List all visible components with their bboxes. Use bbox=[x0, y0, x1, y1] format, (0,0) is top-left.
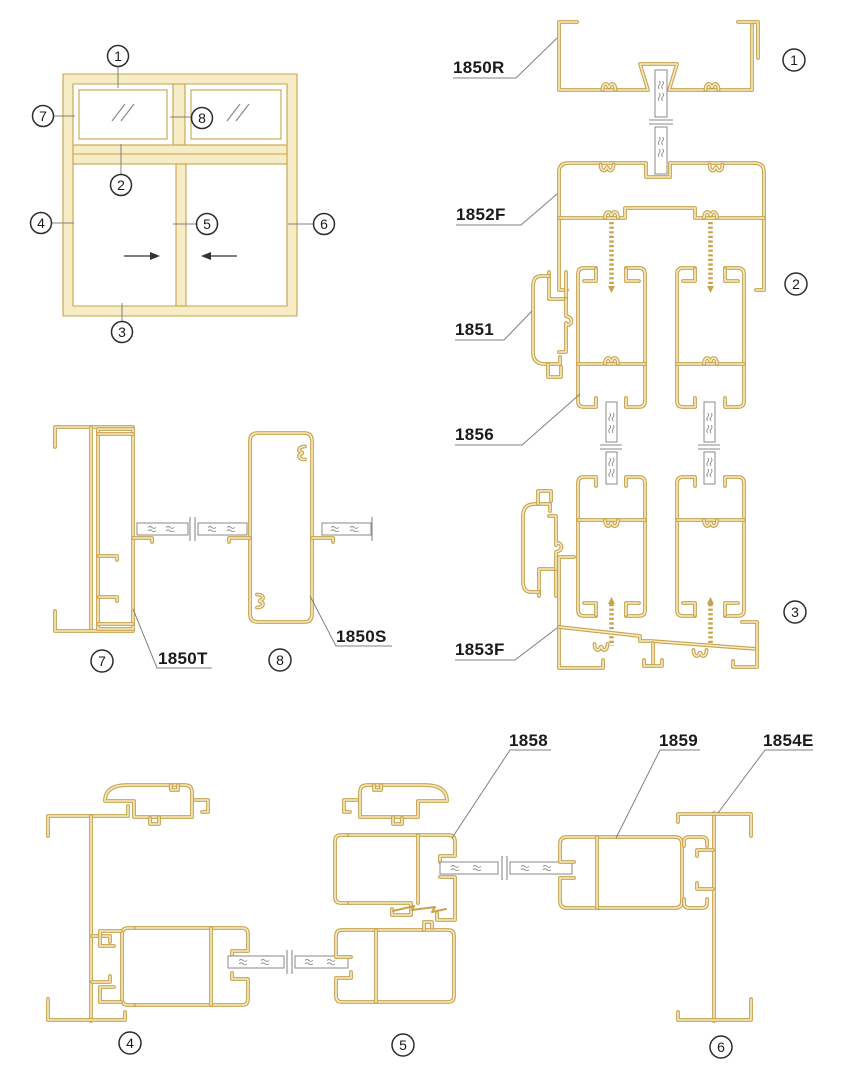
elevation-marker-3: 3 bbox=[112, 322, 133, 343]
svg-text:5: 5 bbox=[203, 216, 211, 232]
svg-text:8: 8 bbox=[276, 652, 284, 668]
svg-text:5: 5 bbox=[399, 1037, 407, 1053]
section-4-jamb-assembly bbox=[48, 785, 248, 1021]
section-6-jamb-1854E bbox=[678, 813, 751, 1021]
section-marker-5: 5 bbox=[392, 1034, 414, 1056]
part-label-1853F: 1853F bbox=[455, 640, 505, 659]
elevation-marker-5: 5 bbox=[197, 214, 218, 235]
section-marker-1: 1 bbox=[783, 49, 805, 71]
part-label-1851: 1851 bbox=[455, 320, 494, 339]
svg-text:8: 8 bbox=[198, 110, 206, 126]
part-label-1858: 1858 bbox=[509, 731, 548, 750]
svg-text:3: 3 bbox=[118, 324, 126, 340]
svg-text:6: 6 bbox=[717, 1039, 725, 1055]
section-marker-8: 8 bbox=[269, 649, 291, 671]
part-label-1859: 1859 bbox=[659, 731, 698, 750]
profile-catalog-page: 1850R 1852F 1851 1856 1853F 1850T 1850S … bbox=[0, 0, 850, 1083]
glass-units-section-2-3 bbox=[600, 402, 720, 484]
glass-units-section-5-6 bbox=[440, 856, 572, 880]
window-profile-diagram: 1850R 1852F 1851 1856 1853F 1850T 1850S … bbox=[0, 0, 850, 1083]
svg-text:7: 7 bbox=[39, 108, 47, 124]
elevation-marker-1: 1 bbox=[108, 46, 129, 67]
part-label-1850R: 1850R bbox=[453, 58, 505, 77]
section-marker-6: 6 bbox=[710, 1036, 732, 1058]
lower-sash bbox=[336, 922, 454, 1002]
sash-profiles-1856 bbox=[578, 222, 744, 407]
glass-units-section-4-5 bbox=[228, 950, 348, 974]
elevation-marker-2: 2 bbox=[111, 175, 132, 196]
svg-text:1: 1 bbox=[114, 48, 122, 64]
upper-sash-1858 bbox=[335, 835, 455, 920]
svg-text:1: 1 bbox=[790, 52, 798, 68]
leader-1858 bbox=[452, 750, 551, 838]
svg-text:3: 3 bbox=[791, 604, 799, 620]
section-marker-7: 7 bbox=[91, 650, 113, 672]
leader-1854E bbox=[718, 750, 813, 813]
svg-text:7: 7 bbox=[98, 653, 106, 669]
elevation-marker-6: 6 bbox=[314, 214, 335, 235]
part-label-1850S: 1850S bbox=[336, 627, 387, 646]
sill-profile-1853F bbox=[559, 557, 757, 668]
meeting-stile bbox=[176, 164, 186, 306]
section-marker-4: 4 bbox=[119, 1032, 141, 1054]
svg-text:2: 2 bbox=[792, 276, 800, 292]
section-2-track-profile-1852F bbox=[559, 163, 764, 290]
elevation-marker-8: 8 bbox=[192, 108, 213, 129]
slide-arrow-left bbox=[201, 252, 237, 260]
part-label-1854E: 1854E bbox=[763, 731, 814, 750]
window-elevation bbox=[52, 67, 313, 321]
handle-profile-1851 bbox=[533, 272, 571, 377]
svg-text:4: 4 bbox=[37, 215, 45, 231]
handle-profile-1851-lower bbox=[523, 491, 561, 596]
slide-arrow-right bbox=[124, 252, 160, 260]
section-3-sash-profiles bbox=[578, 477, 744, 646]
section-marker-3: 3 bbox=[784, 601, 806, 623]
part-label-1856: 1856 bbox=[455, 425, 494, 444]
leader-1859 bbox=[616, 750, 700, 838]
section-6-sash-1859 bbox=[560, 837, 707, 908]
elevation-marker-4: 4 bbox=[31, 213, 52, 234]
part-label-1852F: 1852F bbox=[456, 205, 506, 224]
section-marker-2: 2 bbox=[785, 273, 807, 295]
svg-text:2: 2 bbox=[117, 177, 125, 193]
part-label-1850T: 1850T bbox=[158, 649, 208, 668]
elevation-marker-7: 7 bbox=[33, 106, 54, 127]
section-5-meeting-stiles bbox=[335, 785, 455, 1002]
svg-text:4: 4 bbox=[126, 1035, 134, 1051]
svg-text:6: 6 bbox=[320, 216, 328, 232]
fixed-pane-left bbox=[79, 90, 167, 139]
top-mullion bbox=[173, 84, 185, 145]
